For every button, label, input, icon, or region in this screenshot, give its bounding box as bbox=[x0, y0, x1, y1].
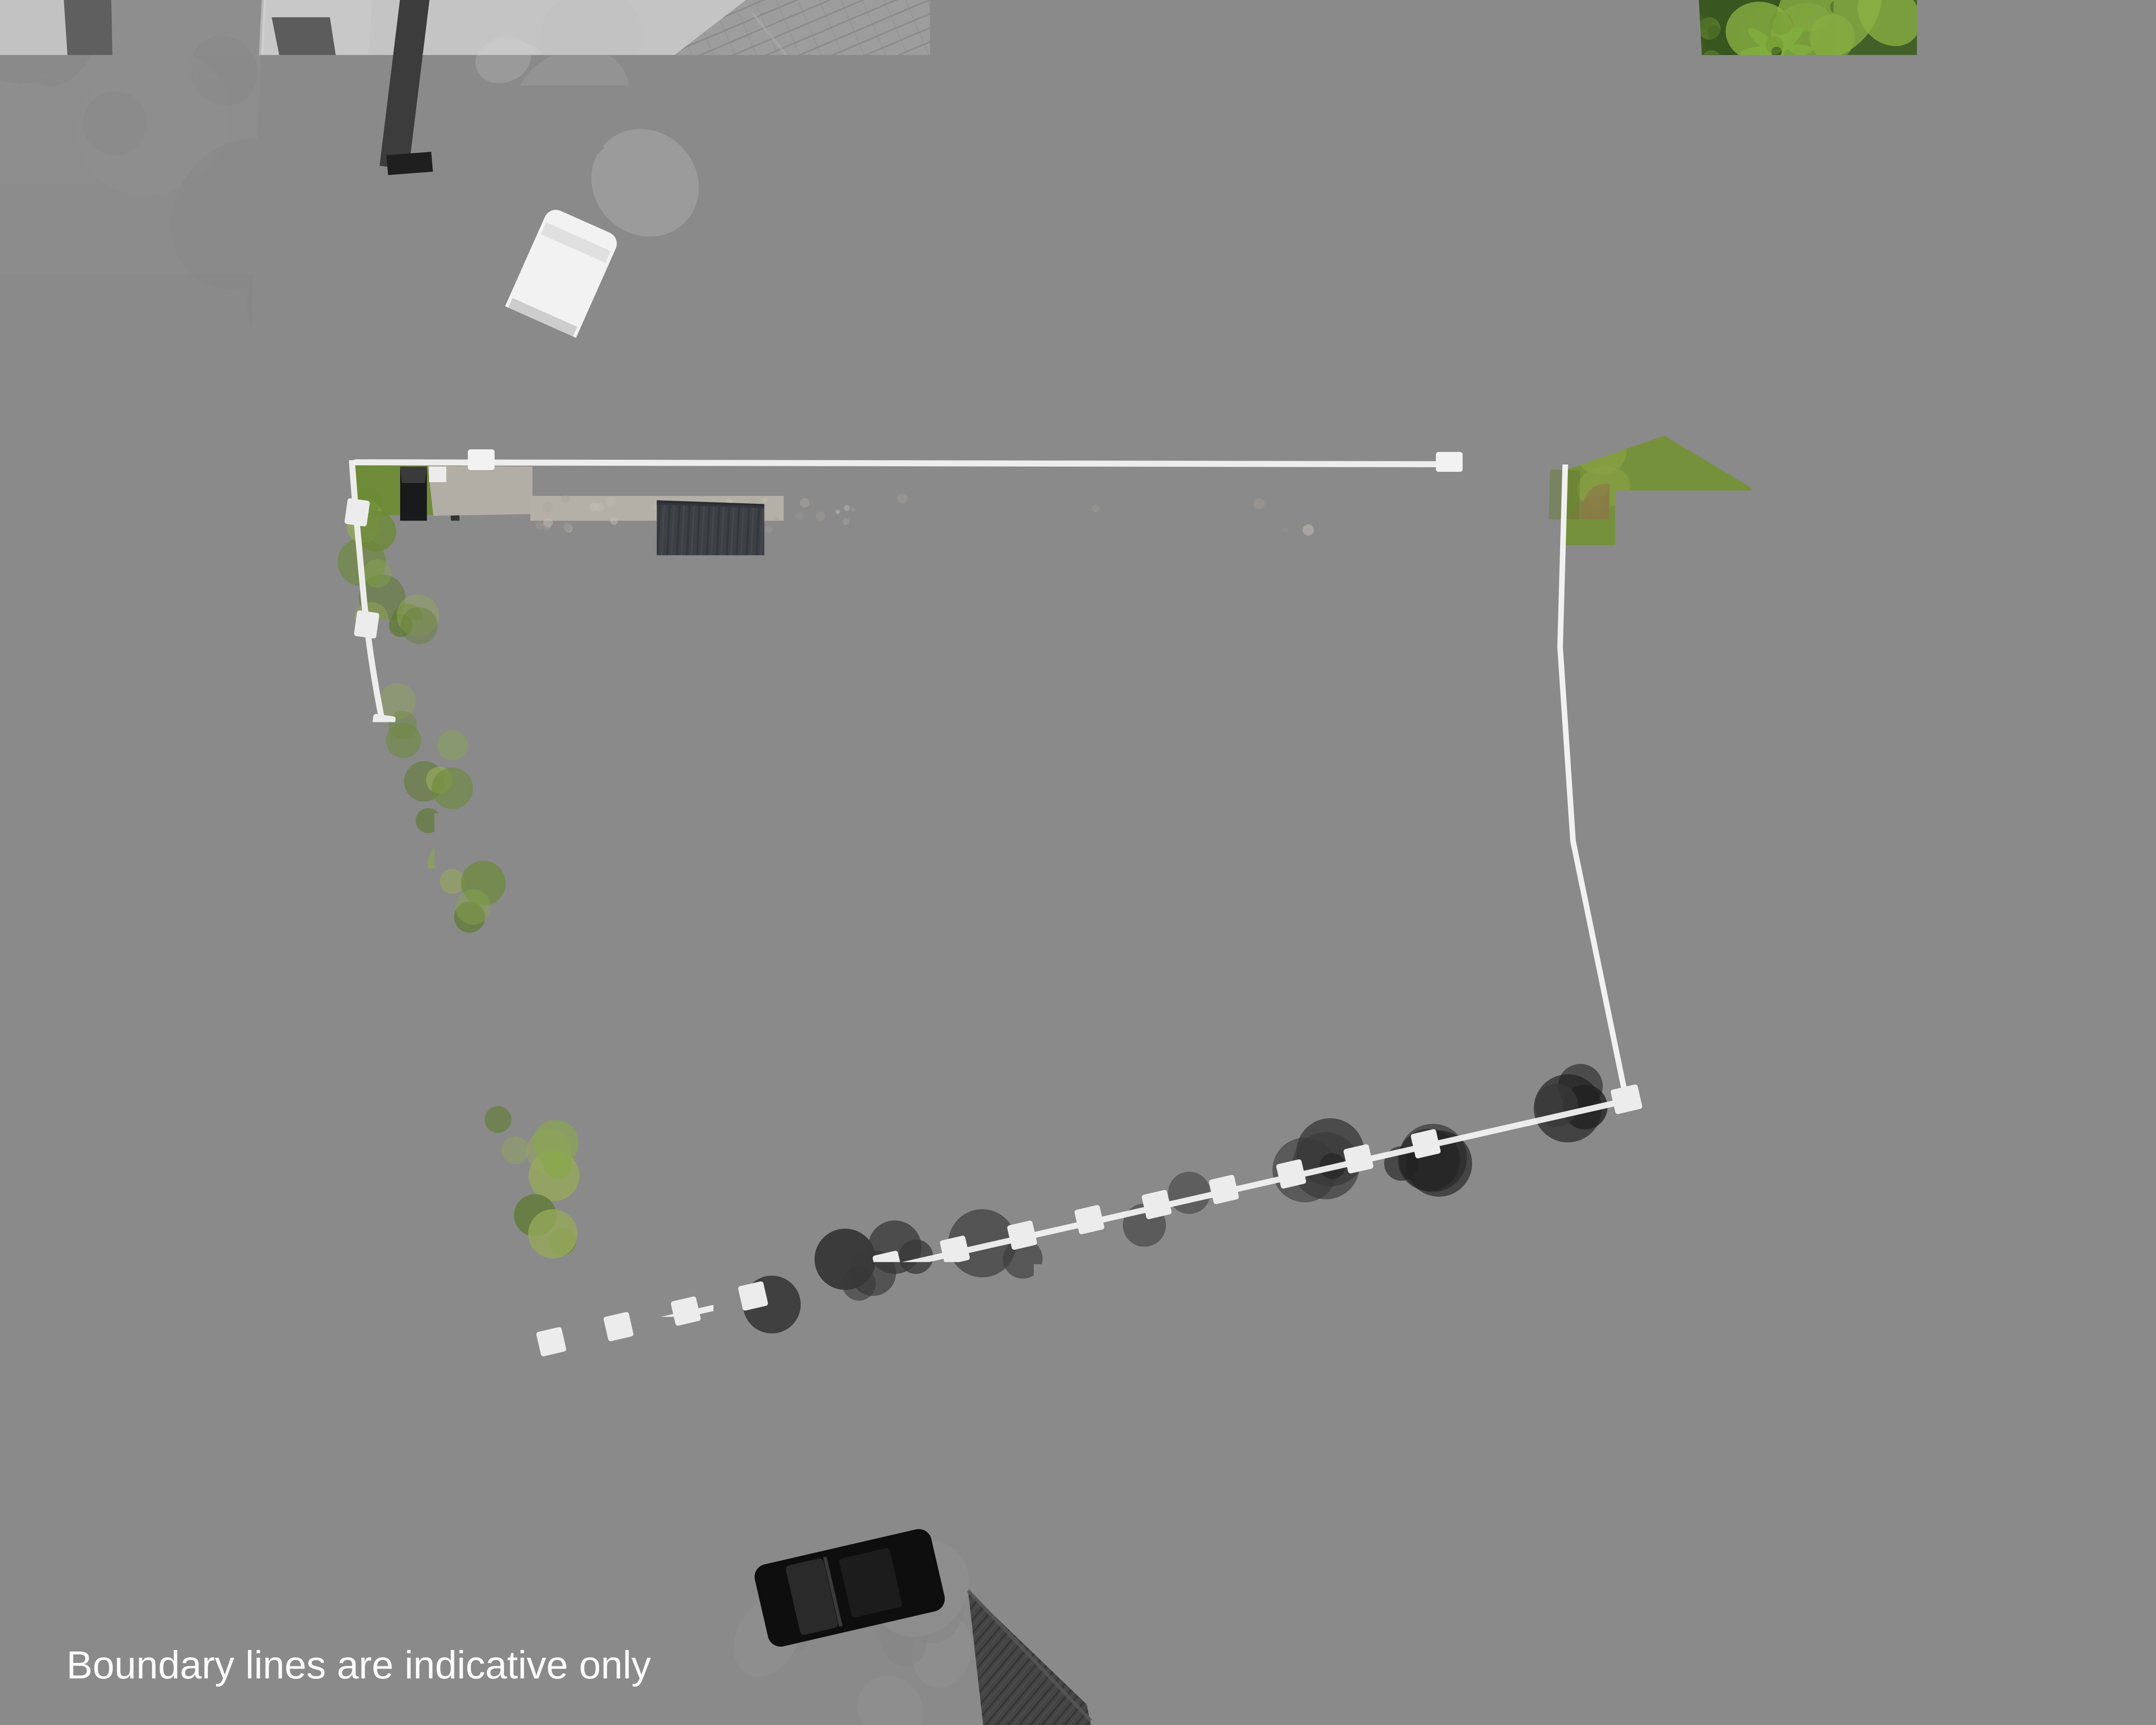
svg-text:Boundary lines are indicative: Boundary lines are indicative only bbox=[66, 1643, 651, 1687]
